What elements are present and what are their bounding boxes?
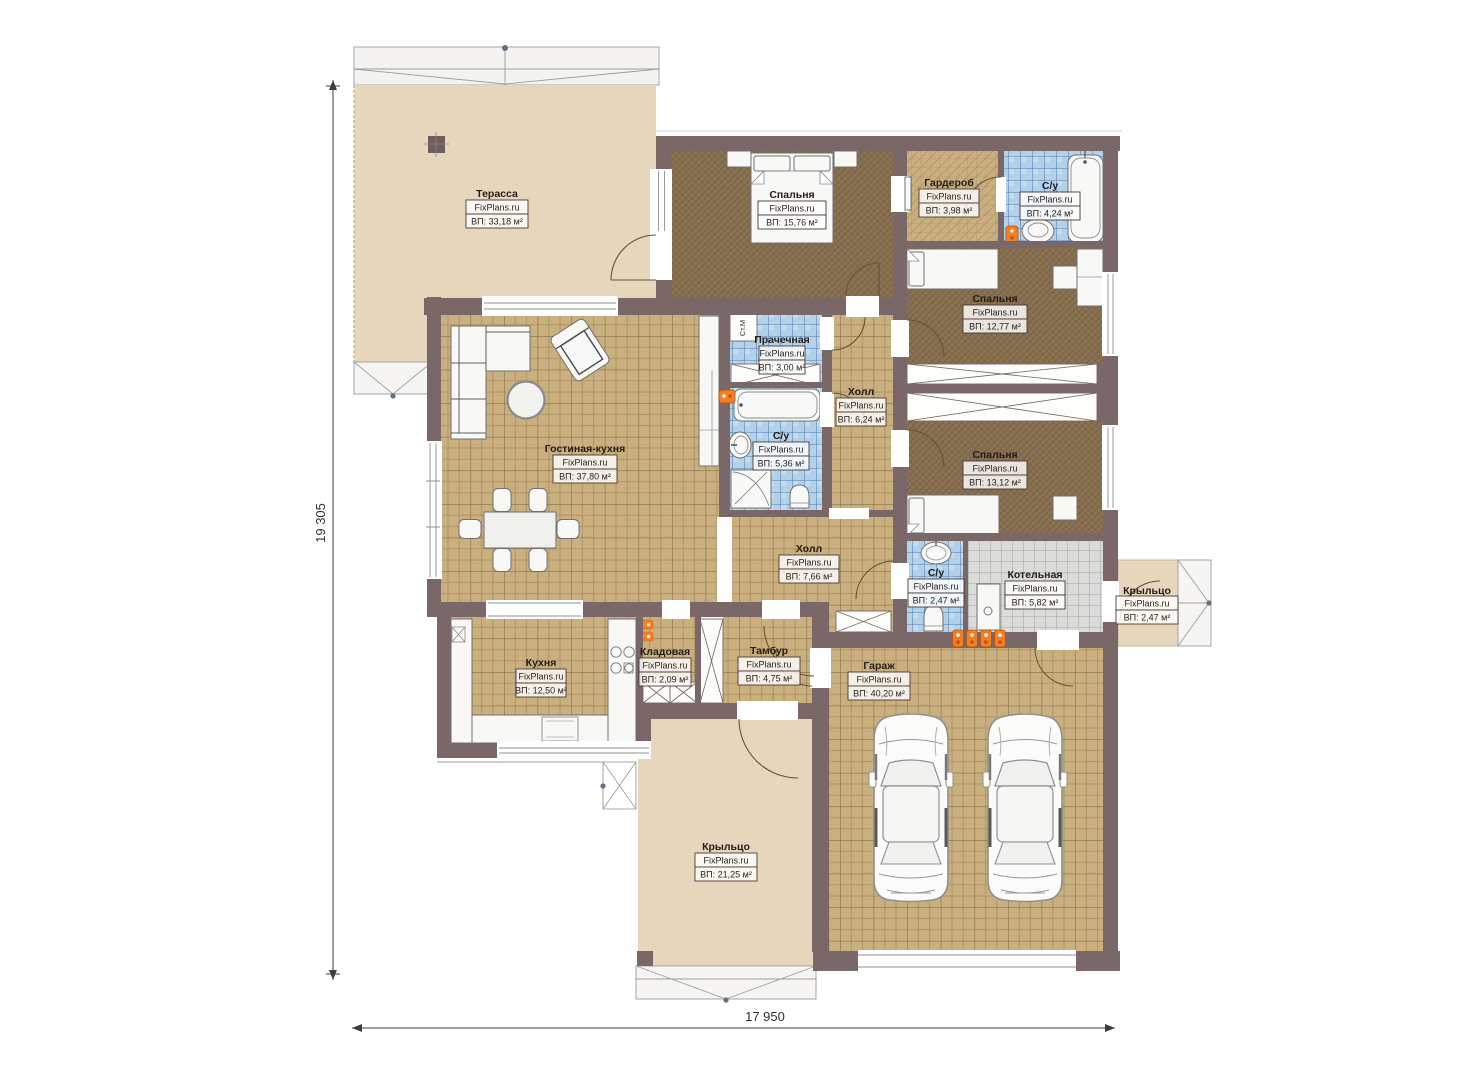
svg-text:FixPlans.ru: FixPlans.ru [838, 401, 883, 411]
svg-text:Крыльцо: Крыльцо [702, 841, 750, 853]
svg-text:FixPlans.ru: FixPlans.ru [642, 661, 687, 671]
svg-text:Спальня: Спальня [769, 189, 814, 201]
svg-text:Кухня: Кухня [526, 657, 557, 669]
svg-text:ВП: 5,82 м²: ВП: 5,82 м² [1012, 598, 1059, 608]
svg-text:С/у: С/у [1042, 180, 1059, 192]
svg-text:ВП: 40,20 м²: ВП: 40,20 м² [853, 689, 905, 699]
svg-text:ВП: 13,12 м²: ВП: 13,12 м² [969, 478, 1021, 488]
svg-text:Кладовая: Кладовая [640, 646, 690, 658]
svg-text:Спальня: Спальня [972, 449, 1017, 461]
svg-text:ВП: 37,80 м²: ВП: 37,80 м² [559, 472, 611, 482]
svg-text:С/у: С/у [928, 567, 945, 579]
svg-text:ВП: 4,75 м²: ВП: 4,75 м² [746, 674, 793, 684]
svg-text:Крыльцо: Крыльцо [1123, 585, 1171, 597]
svg-text:ВП: 2,47 м²: ВП: 2,47 м² [913, 596, 960, 606]
svg-text:ВП: 2,47 м²: ВП: 2,47 м² [1124, 613, 1171, 623]
svg-text:С/у: С/у [773, 430, 790, 442]
svg-text:ВП: 7,66 м²: ВП: 7,66 м² [786, 572, 833, 582]
svg-text:FixPlans.ru: FixPlans.ru [746, 660, 791, 670]
svg-text:ВП: 21,25 м²: ВП: 21,25 м² [700, 870, 752, 880]
svg-text:FixPlans.ru: FixPlans.ru [972, 464, 1017, 474]
svg-text:FixPlans.ru: FixPlans.ru [562, 458, 607, 468]
svg-text:FixPlans.ru: FixPlans.ru [1012, 584, 1057, 594]
svg-text:Ст.М: Ст.М [738, 320, 747, 336]
svg-text:FixPlans.ru: FixPlans.ru [972, 308, 1017, 318]
svg-text:Прачечная: Прачечная [754, 334, 810, 346]
svg-text:Котельная: Котельная [1008, 569, 1063, 581]
svg-text:Холл: Холл [796, 543, 822, 555]
svg-text:17 950: 17 950 [745, 1009, 785, 1024]
svg-text:FixPlans.ru: FixPlans.ru [1027, 195, 1072, 205]
svg-text:ВП: 6,24 м²: ВП: 6,24 м² [838, 415, 885, 425]
svg-text:ВП: 3,00 м²: ВП: 3,00 м² [759, 363, 806, 373]
svg-text:ВП: 15,76 м²: ВП: 15,76 м² [766, 218, 818, 228]
svg-text:FixPlans.ru: FixPlans.ru [518, 672, 563, 682]
svg-text:ВП: 2,09 м²: ВП: 2,09 м² [642, 675, 689, 685]
svg-text:ВП: 5,36 м²: ВП: 5,36 м² [758, 459, 805, 469]
svg-text:Терасса: Терасса [476, 188, 518, 200]
svg-text:Тамбур: Тамбур [750, 645, 788, 657]
svg-text:FixPlans.ru: FixPlans.ru [474, 203, 519, 213]
svg-text:FixPlans.ru: FixPlans.ru [786, 558, 831, 568]
svg-text:FixPlans.ru: FixPlans.ru [758, 445, 803, 455]
svg-text:FixPlans.ru: FixPlans.ru [769, 204, 814, 214]
svg-text:ВП: 4,24 м²: ВП: 4,24 м² [1027, 209, 1074, 219]
svg-text:FixPlans.ru: FixPlans.ru [913, 582, 958, 592]
svg-text:Спальня: Спальня [972, 293, 1017, 305]
svg-text:FixPlans.ru: FixPlans.ru [759, 349, 804, 359]
svg-text:Гостиная-кухня: Гостиная-кухня [545, 443, 625, 455]
svg-text:Гардероб: Гардероб [924, 177, 974, 189]
svg-text:Гараж: Гараж [863, 660, 895, 672]
svg-text:FixPlans.ru: FixPlans.ru [926, 192, 971, 202]
svg-text:ВП: 33,18 м²: ВП: 33,18 м² [471, 217, 523, 227]
svg-text:ВП: 12,77 м²: ВП: 12,77 м² [969, 322, 1021, 332]
svg-text:19 305: 19 305 [313, 503, 328, 543]
svg-text:ВП: 3,98 м²: ВП: 3,98 м² [926, 206, 973, 216]
svg-text:ВП: 12,50 м²: ВП: 12,50 м² [515, 686, 567, 696]
svg-text:Холл: Холл [848, 386, 874, 398]
svg-text:FixPlans.ru: FixPlans.ru [1124, 599, 1169, 609]
svg-text:FixPlans.ru: FixPlans.ru [703, 856, 748, 866]
svg-text:FixPlans.ru: FixPlans.ru [856, 675, 901, 685]
